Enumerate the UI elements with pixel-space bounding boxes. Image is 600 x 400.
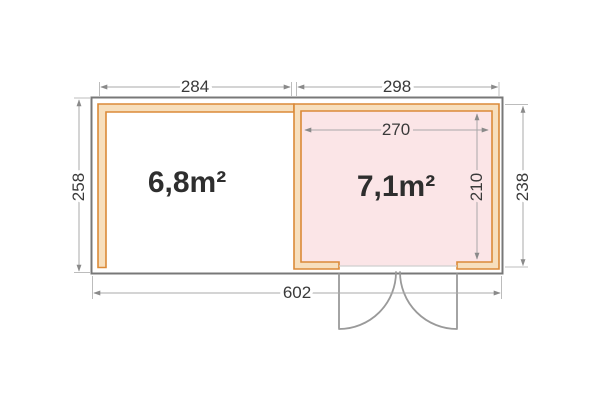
dimension-label-284: 284 xyxy=(181,77,209,96)
floor-plan-canvas: 6,8m² 7,1m² 284 298 270 258 xyxy=(0,0,600,400)
dimension-label-602: 602 xyxy=(283,283,311,302)
dimension-total-width: 602 xyxy=(93,276,502,302)
left-room-area-label: 6,8m² xyxy=(148,166,226,199)
dimension-left-width: 284 xyxy=(100,77,292,96)
double-doors xyxy=(339,266,457,329)
dimension-label-270: 270 xyxy=(382,120,410,139)
dimension-right-depth: 238 xyxy=(505,105,532,268)
dimension-right-width: 298 xyxy=(297,77,500,96)
floor-plan: 6,8m² 7,1m² 284 298 270 258 xyxy=(0,0,600,400)
dimension-label-258: 258 xyxy=(69,173,88,201)
right-room-area-label: 7,1m² xyxy=(357,170,435,203)
dimension-label-210: 210 xyxy=(467,173,486,201)
dimension-left-depth: 258 xyxy=(69,98,90,273)
left-door-swing-arc xyxy=(339,272,396,329)
right-door-swing-arc xyxy=(400,272,457,329)
dimension-label-238: 238 xyxy=(513,173,532,201)
dimension-label-298: 298 xyxy=(383,77,411,96)
